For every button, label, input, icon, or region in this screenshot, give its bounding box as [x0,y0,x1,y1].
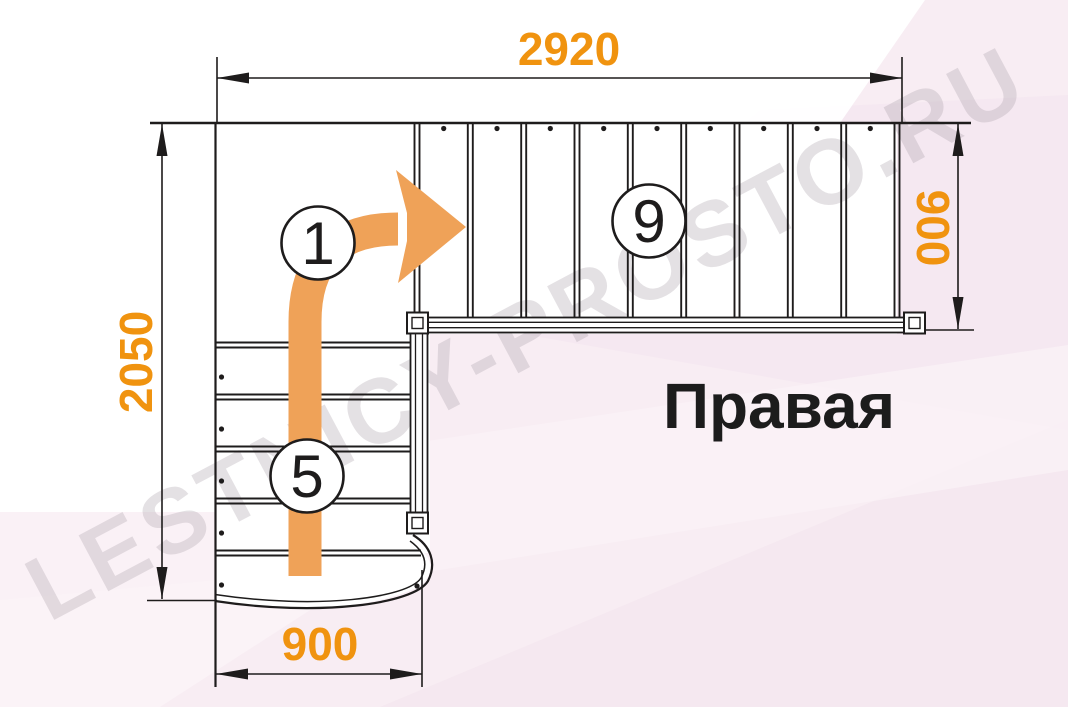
dimension-right-label: 900 [907,190,959,267]
step-marker-start: 1 [282,207,355,280]
dimension-left-label: 2050 [110,311,162,413]
staircase-plan-drawing: LESTNICY-PROSTO.RU [0,0,1068,707]
page-title: Правая [663,370,895,442]
staircase-plan-page: LESTNICY-PROSTO.RU [0,0,1068,707]
step-marker-lower-label: 5 [290,443,323,510]
step-marker-start-label: 1 [301,210,334,277]
lower-stringer [407,334,428,534]
dimension-top-label: 2920 [518,23,620,75]
step-marker-upper-flight: 9 [613,185,686,258]
step-marker-lower-flight: 5 [271,440,344,513]
step-marker-upper-label: 9 [632,188,665,255]
dimension-bottom-label: 900 [282,618,359,670]
